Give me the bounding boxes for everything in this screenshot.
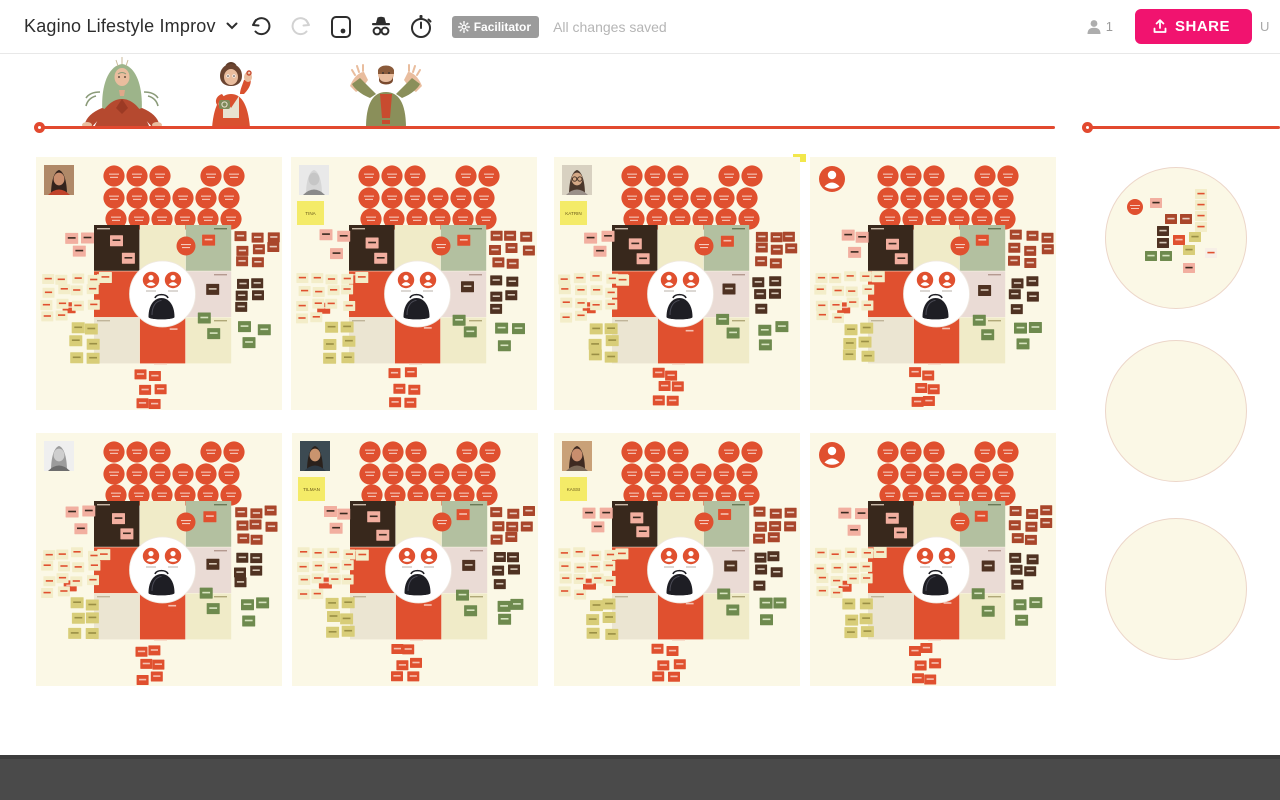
- incognito-icon[interactable]: [364, 10, 398, 44]
- sticky-note[interactable]: [591, 285, 603, 295]
- sticky-note[interactable]: [236, 291, 248, 301]
- sticky-note[interactable]: [72, 301, 84, 311]
- sticky-note[interactable]: [326, 627, 339, 638]
- sticky-note[interactable]: [861, 548, 873, 558]
- idea-circle[interactable]: [359, 441, 380, 462]
- sticky-note[interactable]: [252, 290, 264, 300]
- sticky-note[interactable]: [838, 508, 851, 519]
- sticky-note[interactable]: [843, 349, 856, 360]
- sticky-note[interactable]: [72, 562, 84, 572]
- sticky-note[interactable]: [461, 281, 474, 292]
- sticky-note[interactable]: [1195, 222, 1207, 232]
- line-anchor-dot-left[interactable]: [34, 122, 45, 133]
- idea-circle[interactable]: [456, 441, 477, 462]
- sticky-note[interactable]: [327, 611, 340, 622]
- sticky-note[interactable]: [668, 672, 680, 682]
- sticky-note[interactable]: [342, 336, 355, 347]
- idea-circle[interactable]: [877, 187, 898, 208]
- sticky-note[interactable]: [637, 253, 650, 264]
- sticky-note[interactable]: [366, 238, 379, 249]
- line-anchor-dot-right[interactable]: [1082, 122, 1093, 133]
- sticky-note[interactable]: [922, 371, 934, 381]
- sticky-note[interactable]: [1157, 238, 1169, 248]
- idea-circle[interactable]: [877, 463, 898, 484]
- sticky-note[interactable]: [456, 590, 469, 601]
- sticky-note[interactable]: [575, 311, 587, 321]
- sticky-note[interactable]: [323, 339, 336, 350]
- sticky-note[interactable]: [86, 612, 99, 623]
- sticky-note[interactable]: [58, 561, 70, 571]
- sticky-note[interactable]: [665, 371, 677, 381]
- sticky-note[interactable]: [1024, 246, 1036, 256]
- sticky-note[interactable]: [88, 551, 100, 561]
- sticky-note[interactable]: [464, 605, 477, 616]
- sticky-note[interactable]: [343, 550, 355, 560]
- avatar-placeholder[interactable]: [819, 166, 845, 192]
- idea-circle[interactable]: [405, 463, 426, 484]
- idea-circle[interactable]: [644, 165, 665, 186]
- sticky-note[interactable]: [602, 231, 615, 242]
- idea-circle[interactable]: [172, 187, 193, 208]
- idea-circle[interactable]: [223, 165, 244, 186]
- sticky-note[interactable]: [912, 397, 924, 407]
- timer-icon[interactable]: [404, 10, 438, 44]
- sticky-note[interactable]: [768, 532, 780, 542]
- sticky-note[interactable]: [41, 561, 53, 571]
- sticky-note[interactable]: [71, 597, 84, 608]
- board-thumbnail[interactable]: TINA: [291, 157, 537, 410]
- sticky-note[interactable]: [41, 311, 53, 321]
- sticky-note[interactable]: [1042, 233, 1054, 243]
- sticky-note[interactable]: [559, 562, 571, 572]
- sticky-note[interactable]: [391, 671, 403, 681]
- sticky-note[interactable]: [588, 562, 600, 572]
- avatar-photo[interactable]: [562, 165, 592, 195]
- sticky-note[interactable]: [506, 243, 518, 253]
- sticky-note[interactable]: [341, 322, 354, 333]
- sticky-note[interactable]: [770, 258, 782, 268]
- sticky-note[interactable]: [151, 672, 163, 682]
- sticky-note[interactable]: [895, 253, 908, 264]
- avatar-photo[interactable]: [299, 165, 329, 195]
- sticky-note[interactable]: [1014, 599, 1027, 610]
- sticky-note[interactable]: [721, 236, 734, 247]
- sticky-note[interactable]: [847, 298, 859, 308]
- sticky-note[interactable]: [558, 275, 570, 285]
- sticky-note[interactable]: [265, 506, 277, 516]
- idea-circle[interactable]: [974, 441, 995, 462]
- sticky-note[interactable]: [342, 597, 355, 608]
- sticky-note[interactable]: [1011, 565, 1023, 575]
- sticky-note[interactable]: [842, 230, 855, 241]
- idea-circle[interactable]: [741, 441, 762, 462]
- sticky-note[interactable]: [972, 588, 985, 599]
- sticky-note[interactable]: [311, 273, 323, 283]
- sticky-note[interactable]: [494, 579, 506, 589]
- sticky-note[interactable]: [929, 658, 941, 668]
- sticky-note[interactable]: [328, 563, 340, 573]
- sticky-note[interactable]: [755, 565, 767, 575]
- sticky-note[interactable]: [404, 398, 416, 408]
- sticky-note[interactable]: [140, 659, 152, 669]
- idea-circle[interactable]: [103, 441, 124, 462]
- sticky-note[interactable]: [508, 565, 520, 575]
- sticky-note[interactable]: [498, 340, 511, 351]
- sticky-note[interactable]: [1010, 506, 1022, 516]
- sticky-note[interactable]: [755, 256, 767, 266]
- sticky-note[interactable]: [69, 335, 82, 346]
- sticky-note[interactable]: [252, 233, 264, 243]
- card-tool-icon[interactable]: [324, 10, 358, 44]
- sticky-note[interactable]: [1008, 243, 1020, 253]
- idea-circle[interactable]: [690, 463, 711, 484]
- idea-circle[interactable]: [969, 187, 990, 208]
- sticky-note[interactable]: [629, 238, 642, 249]
- idea-circle[interactable]: [381, 187, 402, 208]
- sticky-note[interactable]: [771, 232, 783, 242]
- sticky-note[interactable]: [112, 513, 125, 524]
- sticky-note[interactable]: [1025, 535, 1037, 545]
- sticky-note[interactable]: [756, 243, 768, 253]
- canvas-cell[interactable]: [612, 318, 657, 364]
- sticky-note[interactable]: [1009, 520, 1021, 530]
- sticky-note[interactable]: [767, 551, 779, 561]
- breakout-circle[interactable]: [1105, 340, 1247, 482]
- sticky-note[interactable]: [1160, 251, 1172, 261]
- sticky-note[interactable]: [343, 301, 355, 311]
- sticky-note[interactable]: [816, 273, 828, 283]
- sticky-note[interactable]: [72, 613, 85, 624]
- sticky-note[interactable]: [754, 507, 766, 517]
- sticky-note[interactable]: [760, 614, 773, 625]
- sticky-note[interactable]: [521, 522, 533, 532]
- sticky-note[interactable]: [755, 553, 767, 563]
- canvas-cell[interactable]: [94, 594, 139, 640]
- sticky-note[interactable]: [311, 589, 323, 599]
- sticky-note[interactable]: [505, 290, 517, 300]
- sticky-note[interactable]: [342, 560, 354, 570]
- sticky-note[interactable]: [237, 279, 249, 289]
- sticky-note[interactable]: [560, 574, 572, 584]
- sticky-note[interactable]: [367, 511, 380, 522]
- sticky-note[interactable]: [396, 660, 408, 670]
- document-title[interactable]: Kagino Lifestyle Improv: [24, 16, 216, 37]
- idea-circle[interactable]: [951, 513, 970, 532]
- sticky-note[interactable]: [1040, 505, 1052, 515]
- sticky-note[interactable]: [237, 521, 249, 531]
- sticky-note[interactable]: [723, 284, 736, 295]
- sticky-note[interactable]: [408, 385, 420, 395]
- facilitator-badge[interactable]: Facilitator: [452, 16, 539, 38]
- idea-circle[interactable]: [621, 463, 642, 484]
- sticky-note[interactable]: [814, 285, 826, 295]
- name-sticky-note[interactable]: TINA: [297, 201, 324, 225]
- sticky-note[interactable]: [235, 507, 247, 517]
- sticky-note[interactable]: [775, 321, 788, 332]
- sticky-note[interactable]: [250, 566, 262, 576]
- sticky-note[interactable]: [58, 284, 70, 294]
- idea-circle[interactable]: [621, 165, 642, 186]
- idea-circle[interactable]: [900, 165, 921, 186]
- sticky-note[interactable]: [1205, 248, 1217, 258]
- board-thumbnail[interactable]: KASSI: [554, 433, 800, 686]
- sticky-note[interactable]: [238, 321, 251, 332]
- idea-circle[interactable]: [103, 165, 124, 186]
- sticky-note[interactable]: [583, 508, 596, 519]
- idea-circle[interactable]: [126, 187, 147, 208]
- canvas-cell[interactable]: [612, 501, 657, 547]
- sticky-note[interactable]: [340, 613, 353, 624]
- sticky-note[interactable]: [603, 561, 615, 571]
- sticky-note[interactable]: [1029, 597, 1042, 608]
- sticky-note[interactable]: [832, 313, 844, 323]
- sticky-note[interactable]: [235, 231, 247, 241]
- sticky-note[interactable]: [862, 285, 874, 295]
- sticky-note[interactable]: [604, 576, 616, 586]
- idea-circle[interactable]: [200, 165, 221, 186]
- sticky-note[interactable]: [856, 232, 869, 243]
- sticky-note[interactable]: [65, 233, 78, 244]
- canvas-cell[interactable]: [186, 318, 231, 364]
- sticky-note[interactable]: [258, 324, 271, 335]
- idea-circle[interactable]: [223, 441, 244, 462]
- sticky-note[interactable]: [42, 274, 54, 284]
- sticky-note[interactable]: [462, 560, 475, 571]
- sticky-note[interactable]: [323, 353, 336, 364]
- idea-circle[interactable]: [103, 187, 124, 208]
- sticky-note[interactable]: [506, 522, 518, 532]
- sticky-note[interactable]: [842, 599, 855, 610]
- idea-circle[interactable]: [359, 463, 380, 484]
- sticky-note[interactable]: [43, 550, 55, 560]
- sticky-note[interactable]: [574, 563, 586, 573]
- sticky-note[interactable]: [846, 287, 858, 297]
- sticky-note[interactable]: [872, 271, 885, 282]
- sticky-note[interactable]: [402, 644, 414, 654]
- idea-circle[interactable]: [450, 187, 471, 208]
- sticky-note[interactable]: [99, 272, 112, 283]
- sticky-note[interactable]: [1027, 554, 1039, 564]
- sticky-note[interactable]: [489, 245, 501, 255]
- sticky-note[interactable]: [71, 285, 83, 295]
- sticky-note[interactable]: [298, 575, 310, 585]
- sticky-note[interactable]: [886, 513, 899, 524]
- idea-circle[interactable]: [177, 513, 196, 532]
- idea-circle[interactable]: [923, 165, 944, 186]
- idea-circle[interactable]: [218, 187, 239, 208]
- sticky-note[interactable]: [136, 647, 148, 657]
- idea-circle[interactable]: [479, 441, 500, 462]
- sticky-note[interactable]: [296, 273, 308, 283]
- sticky-note[interactable]: [237, 534, 249, 544]
- sticky-note[interactable]: [453, 315, 466, 326]
- sticky-note[interactable]: [603, 612, 616, 623]
- sticky-note[interactable]: [667, 646, 679, 656]
- sticky-note[interactable]: [1173, 235, 1185, 245]
- sticky-note[interactable]: [149, 399, 161, 409]
- sticky-note[interactable]: [326, 598, 339, 609]
- idea-circle[interactable]: [427, 187, 448, 208]
- sticky-note[interactable]: [510, 599, 523, 610]
- sticky-note[interactable]: [82, 506, 95, 517]
- sticky-note[interactable]: [653, 395, 665, 405]
- sticky-note[interactable]: [57, 573, 69, 583]
- canvas-cell[interactable]: [186, 594, 231, 640]
- sticky-note[interactable]: [55, 275, 67, 285]
- sticky-note[interactable]: [43, 288, 55, 298]
- sticky-note[interactable]: [85, 324, 98, 335]
- sticky-note[interactable]: [718, 509, 731, 520]
- sticky-note[interactable]: [862, 351, 875, 362]
- sticky-note[interactable]: [575, 298, 587, 308]
- idea-circle[interactable]: [432, 237, 451, 256]
- sticky-note[interactable]: [523, 246, 535, 256]
- idea-circle[interactable]: [149, 441, 170, 462]
- sticky-note[interactable]: [253, 244, 265, 254]
- idea-circle[interactable]: [149, 187, 170, 208]
- sticky-note[interactable]: [88, 300, 100, 310]
- sticky-note[interactable]: [87, 284, 99, 294]
- sticky-note[interactable]: [313, 287, 325, 297]
- sticky-note[interactable]: [605, 352, 618, 363]
- sticky-note[interactable]: [498, 614, 511, 625]
- sticky-note[interactable]: [236, 246, 248, 256]
- idea-circle[interactable]: [900, 441, 921, 462]
- sticky-note[interactable]: [87, 575, 99, 585]
- canvas-cell[interactable]: [350, 594, 395, 640]
- idea-circle[interactable]: [900, 187, 921, 208]
- sticky-note[interactable]: [1150, 198, 1162, 208]
- sticky-note[interactable]: [1189, 232, 1201, 242]
- sticky-note[interactable]: [978, 285, 991, 296]
- sticky-note[interactable]: [250, 520, 262, 530]
- sticky-note[interactable]: [523, 506, 535, 516]
- sticky-note[interactable]: [70, 576, 82, 586]
- sticky-note[interactable]: [491, 535, 503, 545]
- idea-circle[interactable]: [433, 513, 452, 532]
- sticky-note[interactable]: [198, 313, 211, 324]
- sticky-note[interactable]: [155, 384, 167, 394]
- sticky-note[interactable]: [606, 335, 619, 346]
- sticky-note[interactable]: [490, 292, 502, 302]
- sticky-note[interactable]: [605, 550, 617, 560]
- idea-circle[interactable]: [695, 513, 714, 532]
- sticky-note[interactable]: [590, 300, 602, 310]
- sticky-note[interactable]: [389, 368, 401, 378]
- canvas-cell[interactable]: [612, 594, 657, 640]
- avatar-photo[interactable]: [44, 165, 74, 195]
- sticky-note[interactable]: [492, 566, 504, 576]
- sticky-note[interactable]: [310, 312, 322, 322]
- sticky-note[interactable]: [605, 323, 618, 334]
- sticky-note[interactable]: [73, 246, 86, 257]
- idea-circle[interactable]: [713, 187, 734, 208]
- sticky-note[interactable]: [605, 300, 617, 310]
- idea-circle[interactable]: [195, 187, 216, 208]
- idea-circle[interactable]: [969, 463, 990, 484]
- sticky-note[interactable]: [1009, 553, 1021, 563]
- canvas-cell[interactable]: [94, 225, 139, 271]
- sticky-note[interactable]: [407, 671, 419, 681]
- canvas-cell[interactable]: [868, 594, 913, 640]
- sticky-note[interactable]: [299, 286, 311, 296]
- sticky-note[interactable]: [1012, 278, 1024, 288]
- sticky-note[interactable]: [329, 575, 341, 585]
- sticky-note[interactable]: [490, 507, 502, 517]
- sticky-note[interactable]: [342, 626, 355, 637]
- sticky-note[interactable]: [266, 522, 278, 532]
- sticky-note[interactable]: [330, 523, 343, 534]
- sticky-note[interactable]: [1195, 211, 1207, 221]
- sticky-note[interactable]: [495, 323, 508, 334]
- sticky-note[interactable]: [982, 606, 995, 617]
- sticky-note[interactable]: [785, 243, 797, 253]
- sticky-note[interactable]: [831, 588, 843, 598]
- sticky-note[interactable]: [337, 231, 350, 242]
- sticky-note[interactable]: [606, 274, 618, 284]
- sticky-note[interactable]: [1009, 289, 1021, 299]
- sticky-note[interactable]: [464, 326, 477, 337]
- sticky-note[interactable]: [251, 278, 263, 288]
- sticky-note[interactable]: [575, 285, 587, 295]
- sticky-note[interactable]: [389, 397, 401, 407]
- sticky-note[interactable]: [558, 548, 570, 558]
- sticky-note[interactable]: [716, 314, 729, 325]
- sticky-note[interactable]: [324, 506, 337, 517]
- idea-circle[interactable]: [718, 441, 739, 462]
- sticky-note[interactable]: [912, 673, 924, 683]
- idea-circle[interactable]: [667, 187, 688, 208]
- sticky-note[interactable]: [769, 276, 781, 286]
- sticky-note[interactable]: [152, 660, 164, 670]
- sticky-note[interactable]: [312, 548, 324, 558]
- sticky-note[interactable]: [574, 273, 586, 283]
- sticky-note[interactable]: [298, 547, 310, 557]
- sticky-note[interactable]: [760, 598, 773, 609]
- sticky-note[interactable]: [41, 588, 53, 598]
- sticky-note[interactable]: [86, 600, 99, 611]
- sticky-note[interactable]: [574, 590, 586, 600]
- idea-circle[interactable]: [358, 165, 379, 186]
- name-sticky-note[interactable]: KATRIN: [560, 201, 587, 225]
- share-button[interactable]: SHARE: [1135, 9, 1252, 44]
- sticky-note[interactable]: [784, 521, 796, 531]
- idea-circle[interactable]: [126, 165, 147, 186]
- sticky-note[interactable]: [256, 597, 269, 608]
- sticky-note[interactable]: [783, 232, 795, 242]
- breakout-circle[interactable]: [1105, 518, 1247, 660]
- sticky-note[interactable]: [327, 548, 339, 558]
- sticky-note[interactable]: [759, 339, 772, 350]
- sticky-note[interactable]: [559, 284, 571, 294]
- idea-circle[interactable]: [741, 165, 762, 186]
- sticky-note[interactable]: [297, 562, 309, 572]
- board-thumbnail[interactable]: [36, 433, 282, 686]
- idea-circle[interactable]: [177, 237, 196, 256]
- sticky-note[interactable]: [1011, 304, 1023, 314]
- sticky-note[interactable]: [241, 599, 254, 610]
- idea-circle[interactable]: [946, 187, 967, 208]
- idea-circle[interactable]: [695, 237, 714, 256]
- idea-circle[interactable]: [736, 463, 757, 484]
- sticky-note[interactable]: [831, 576, 843, 586]
- sticky-note[interactable]: [589, 551, 601, 561]
- sticky-note[interactable]: [355, 272, 368, 283]
- sticky-note[interactable]: [504, 231, 516, 241]
- sticky-note[interactable]: [754, 289, 766, 299]
- sticky-note[interactable]: [342, 575, 354, 585]
- sticky-note[interactable]: [507, 259, 519, 269]
